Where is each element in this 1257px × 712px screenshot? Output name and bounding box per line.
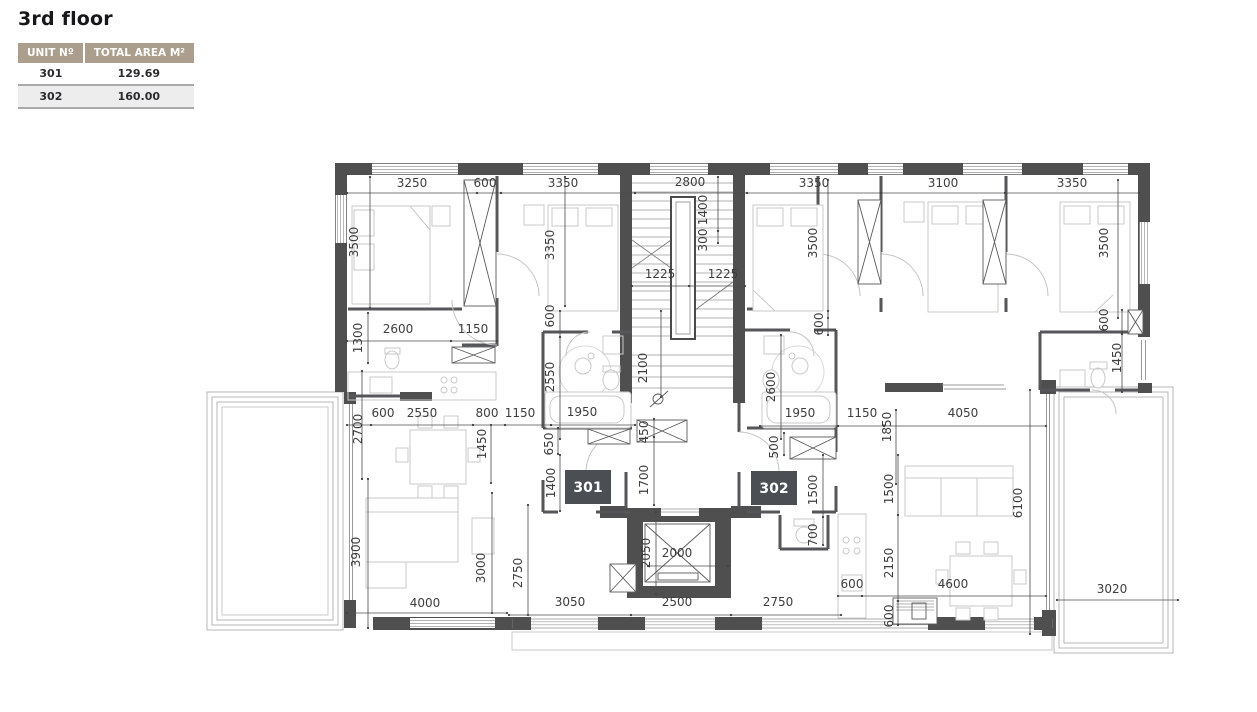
units-table: UNIT Nº TOTAL AREA M² 301 129.69 302 160… [18,43,194,109]
bed [352,206,450,304]
kitchen-counter [838,514,866,618]
svg-text:700: 700 [806,524,820,547]
svg-text:2800: 2800 [675,175,706,189]
svg-text:2700: 2700 [351,414,365,445]
svg-text:300: 300 [696,229,710,252]
svg-text:3000: 3000 [474,553,488,584]
svg-text:3020: 3020 [1097,582,1128,596]
unit-badges: 301302 [565,470,797,505]
closet [983,200,1006,284]
svg-text:2600: 2600 [383,322,414,336]
svg-text:6100: 6100 [1011,488,1025,519]
svg-text:1150: 1150 [458,322,489,336]
svg-text:1225: 1225 [645,267,676,281]
closet [858,200,881,284]
svg-text:2550: 2550 [407,406,438,420]
svg-text:450: 450 [637,421,651,444]
wc-fixtures [385,348,400,369]
balcony-left [207,392,343,630]
floor-plan: 301302 325060033502800335031003350350033… [195,145,1185,670]
svg-text:3100: 3100 [928,176,959,190]
page-title: 3rd floor [18,8,194,30]
shaft [588,429,630,444]
svg-text:2600: 2600 [764,372,778,403]
svg-text:2750: 2750 [511,558,525,589]
svg-text:3900: 3900 [349,537,363,568]
svg-text:600: 600 [372,406,395,420]
unit-number: 301 [18,63,84,85]
svg-text:1400: 1400 [544,468,558,499]
svg-text:4600: 4600 [938,577,969,591]
shaft [452,347,495,363]
svg-text:600: 600 [543,305,557,328]
svg-text:3350: 3350 [543,230,557,261]
svg-text:301: 301 [573,480,602,496]
svg-text:3350: 3350 [548,176,579,190]
closet [464,180,496,306]
dining-table [396,416,480,498]
svg-text:1225: 1225 [708,267,739,281]
svg-text:1400: 1400 [696,195,710,226]
svg-text:500: 500 [767,436,781,459]
terrace-bottom [512,632,1052,650]
shaft [610,564,636,592]
svg-text:3350: 3350 [799,176,830,190]
col-header-unit: UNIT Nº [18,43,84,63]
bathroom-fixtures [1060,362,1107,388]
svg-text:1150: 1150 [505,406,536,420]
svg-text:1450: 1450 [475,429,489,460]
bottom-wall-band [513,617,1052,630]
svg-text:600: 600 [1097,309,1111,332]
table-row: 302 160.00 [18,85,194,108]
svg-text:1700: 1700 [637,465,651,496]
svg-text:1500: 1500 [806,475,820,506]
svg-text:650: 650 [542,433,556,456]
svg-text:1500: 1500 [882,474,896,505]
shaft [1128,310,1143,334]
svg-text:600: 600 [882,605,896,628]
svg-text:2000: 2000 [662,546,693,560]
svg-text:4050: 4050 [948,406,979,420]
svg-text:1150: 1150 [847,406,878,420]
svg-text:600: 600 [812,313,826,336]
svg-text:1450: 1450 [1110,343,1124,374]
sauna [893,598,937,624]
svg-text:2150: 2150 [882,548,896,579]
svg-text:1300: 1300 [351,323,365,354]
svg-text:2100: 2100 [636,353,650,384]
svg-text:1950: 1950 [785,406,816,420]
unit-area: 160.00 [84,85,194,108]
svg-text:2750: 2750 [763,595,794,609]
unit-number: 302 [18,85,84,108]
sofa [905,466,1013,516]
svg-text:3500: 3500 [347,227,361,258]
svg-text:3050: 3050 [555,595,586,609]
unit-area: 129.69 [84,63,194,85]
svg-text:800: 800 [476,406,499,420]
col-header-area: TOTAL AREA M² [84,43,194,63]
svg-text:1950: 1950 [567,405,598,419]
svg-text:3500: 3500 [1097,228,1111,259]
svg-text:1850: 1850 [880,412,894,443]
svg-text:3250: 3250 [397,176,428,190]
svg-text:2050: 2050 [639,538,653,569]
svg-text:302: 302 [759,481,788,497]
bed [524,205,618,311]
svg-text:2500: 2500 [662,595,693,609]
svg-text:3500: 3500 [806,228,820,259]
balcony-right [1054,387,1173,653]
info-panel: 3rd floor UNIT Nº TOTAL AREA M² 301 129.… [18,8,194,109]
shaft [790,437,836,459]
svg-text:600: 600 [841,577,864,591]
svg-text:3350: 3350 [1057,176,1088,190]
svg-text:4000: 4000 [410,596,441,610]
table-row: 301 129.69 [18,63,194,85]
svg-text:2550: 2550 [543,362,557,393]
bed [1060,202,1130,312]
svg-text:600: 600 [474,176,497,190]
